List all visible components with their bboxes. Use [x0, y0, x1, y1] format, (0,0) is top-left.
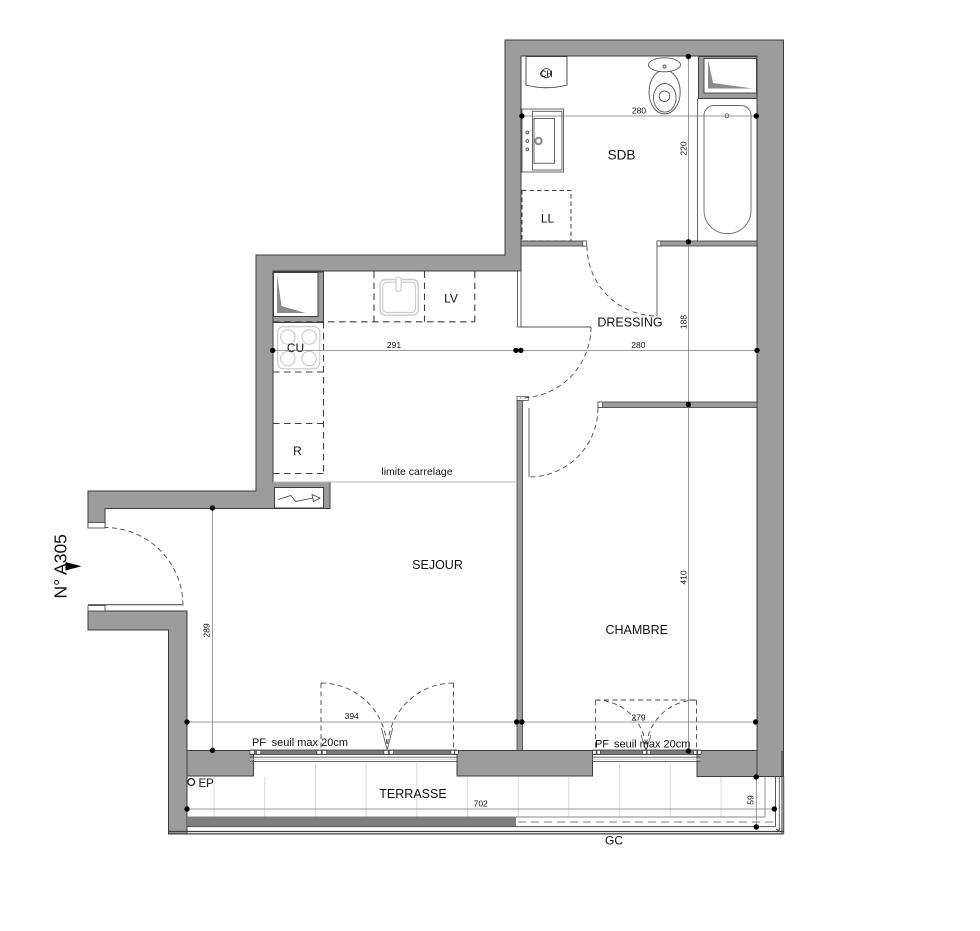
svg-text:LL: LL	[541, 212, 555, 226]
svg-text:R: R	[293, 444, 302, 458]
svg-text:LV: LV	[444, 292, 458, 306]
svg-text:seuil max 20cm: seuil max 20cm	[272, 737, 348, 749]
svg-text:limite carrelage: limite carrelage	[381, 466, 452, 478]
svg-text:188: 188	[679, 315, 689, 329]
svg-text:TERRASSE: TERRASSE	[379, 787, 446, 801]
svg-text:291: 291	[387, 340, 401, 350]
svg-text:CHAMBRE: CHAMBRE	[605, 623, 668, 637]
svg-text:PF: PF	[252, 737, 266, 749]
svg-text:DRESSING: DRESSING	[597, 316, 662, 330]
svg-text:CU: CU	[287, 341, 304, 355]
svg-text:289: 289	[202, 623, 212, 637]
svg-text:EP: EP	[199, 778, 215, 790]
svg-text:220: 220	[679, 141, 689, 155]
svg-text:279: 279	[631, 713, 645, 723]
svg-text:59: 59	[746, 795, 756, 805]
svg-text:SDB: SDB	[608, 148, 636, 163]
svg-text:702: 702	[474, 798, 488, 808]
svg-text:SEJOUR: SEJOUR	[412, 558, 463, 572]
svg-text:CH: CH	[540, 69, 553, 79]
svg-text:394: 394	[345, 711, 359, 721]
svg-text:GC: GC	[605, 834, 623, 848]
svg-text:280: 280	[631, 340, 645, 350]
svg-text:seuil max 20cm: seuil max 20cm	[614, 739, 690, 751]
svg-text:280: 280	[632, 106, 646, 116]
svg-text:410: 410	[679, 570, 689, 584]
svg-text:PF: PF	[595, 739, 609, 751]
